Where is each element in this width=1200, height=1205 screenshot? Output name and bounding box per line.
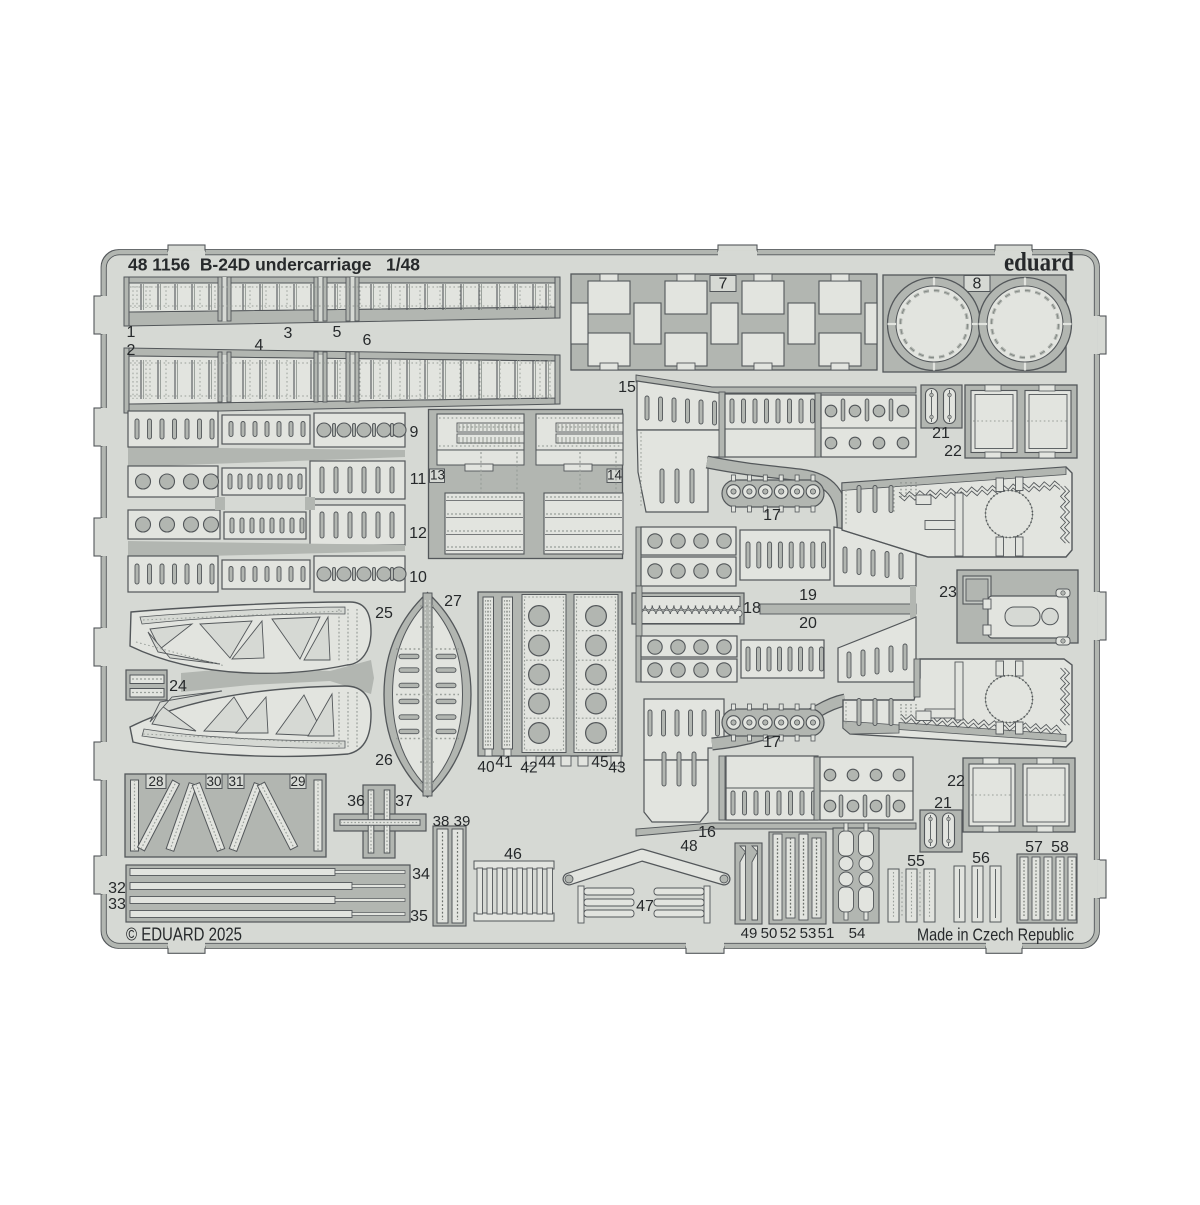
- svg-text:41: 41: [495, 754, 512, 771]
- svg-text:2: 2: [127, 342, 136, 359]
- svg-text:43: 43: [608, 760, 625, 777]
- svg-text:1: 1: [127, 324, 136, 341]
- svg-text:4: 4: [255, 337, 264, 354]
- svg-text:10: 10: [409, 569, 427, 586]
- svg-text:42: 42: [520, 760, 537, 777]
- svg-text:55: 55: [907, 853, 925, 870]
- svg-text:eduard: eduard: [1004, 248, 1074, 277]
- svg-text:23: 23: [939, 584, 957, 601]
- svg-text:17: 17: [763, 507, 781, 524]
- svg-text:36: 36: [347, 793, 365, 810]
- svg-text:16: 16: [698, 824, 716, 841]
- svg-text:57: 57: [1025, 839, 1043, 856]
- svg-text:39: 39: [454, 813, 471, 830]
- svg-text:53: 53: [800, 925, 817, 942]
- svg-text:48: 48: [680, 838, 697, 855]
- svg-text:Made in Czech Republic: Made in Czech Republic: [917, 925, 1074, 945]
- svg-text:33: 33: [108, 896, 126, 913]
- svg-text:38: 38: [433, 813, 450, 830]
- svg-text:56: 56: [972, 850, 990, 867]
- svg-text:24: 24: [169, 678, 187, 695]
- svg-text:52: 52: [780, 925, 797, 942]
- svg-text:25: 25: [375, 605, 393, 622]
- svg-text:47: 47: [636, 898, 654, 915]
- svg-text:50: 50: [761, 925, 778, 942]
- svg-text:46: 46: [504, 846, 522, 863]
- svg-text:58: 58: [1051, 839, 1069, 856]
- svg-text:22: 22: [947, 773, 965, 790]
- svg-text:11: 11: [410, 471, 427, 488]
- svg-text:15: 15: [618, 379, 636, 396]
- svg-text:35: 35: [410, 908, 428, 925]
- svg-text:7: 7: [719, 276, 728, 293]
- svg-text:3: 3: [284, 325, 293, 342]
- svg-text:51: 51: [818, 925, 835, 942]
- svg-text:34: 34: [412, 866, 430, 883]
- svg-text:27: 27: [444, 593, 462, 610]
- svg-text:6: 6: [363, 332, 372, 349]
- svg-text:49: 49: [741, 925, 758, 942]
- svg-text:40: 40: [477, 759, 495, 776]
- svg-text:44: 44: [538, 754, 556, 771]
- svg-text:37: 37: [395, 793, 413, 810]
- svg-text:29: 29: [290, 774, 305, 789]
- svg-text:14: 14: [607, 468, 623, 483]
- svg-text:48 1156 B-24D undercarriage: 48 1156 B-24D undercarriage 1/48: [128, 255, 420, 275]
- svg-text:9: 9: [410, 424, 419, 441]
- svg-text:8: 8: [973, 276, 982, 293]
- svg-text:30: 30: [206, 774, 221, 789]
- svg-text:18: 18: [743, 600, 761, 617]
- svg-text:19: 19: [799, 587, 817, 604]
- svg-text:20: 20: [799, 615, 817, 632]
- svg-text:21: 21: [932, 425, 950, 442]
- svg-text:31: 31: [228, 774, 243, 789]
- svg-text:28: 28: [148, 774, 163, 789]
- svg-text:45: 45: [591, 754, 608, 771]
- svg-text:17: 17: [763, 734, 781, 751]
- svg-text:13: 13: [430, 468, 445, 483]
- svg-text:32: 32: [108, 880, 126, 897]
- svg-text:12: 12: [409, 525, 427, 542]
- svg-text:© EDUARD 2025: © EDUARD 2025: [126, 925, 242, 945]
- svg-text:5: 5: [333, 324, 342, 341]
- svg-text:21: 21: [934, 795, 952, 812]
- svg-text:22: 22: [944, 443, 962, 460]
- svg-text:26: 26: [375, 752, 393, 769]
- svg-text:54: 54: [849, 925, 866, 942]
